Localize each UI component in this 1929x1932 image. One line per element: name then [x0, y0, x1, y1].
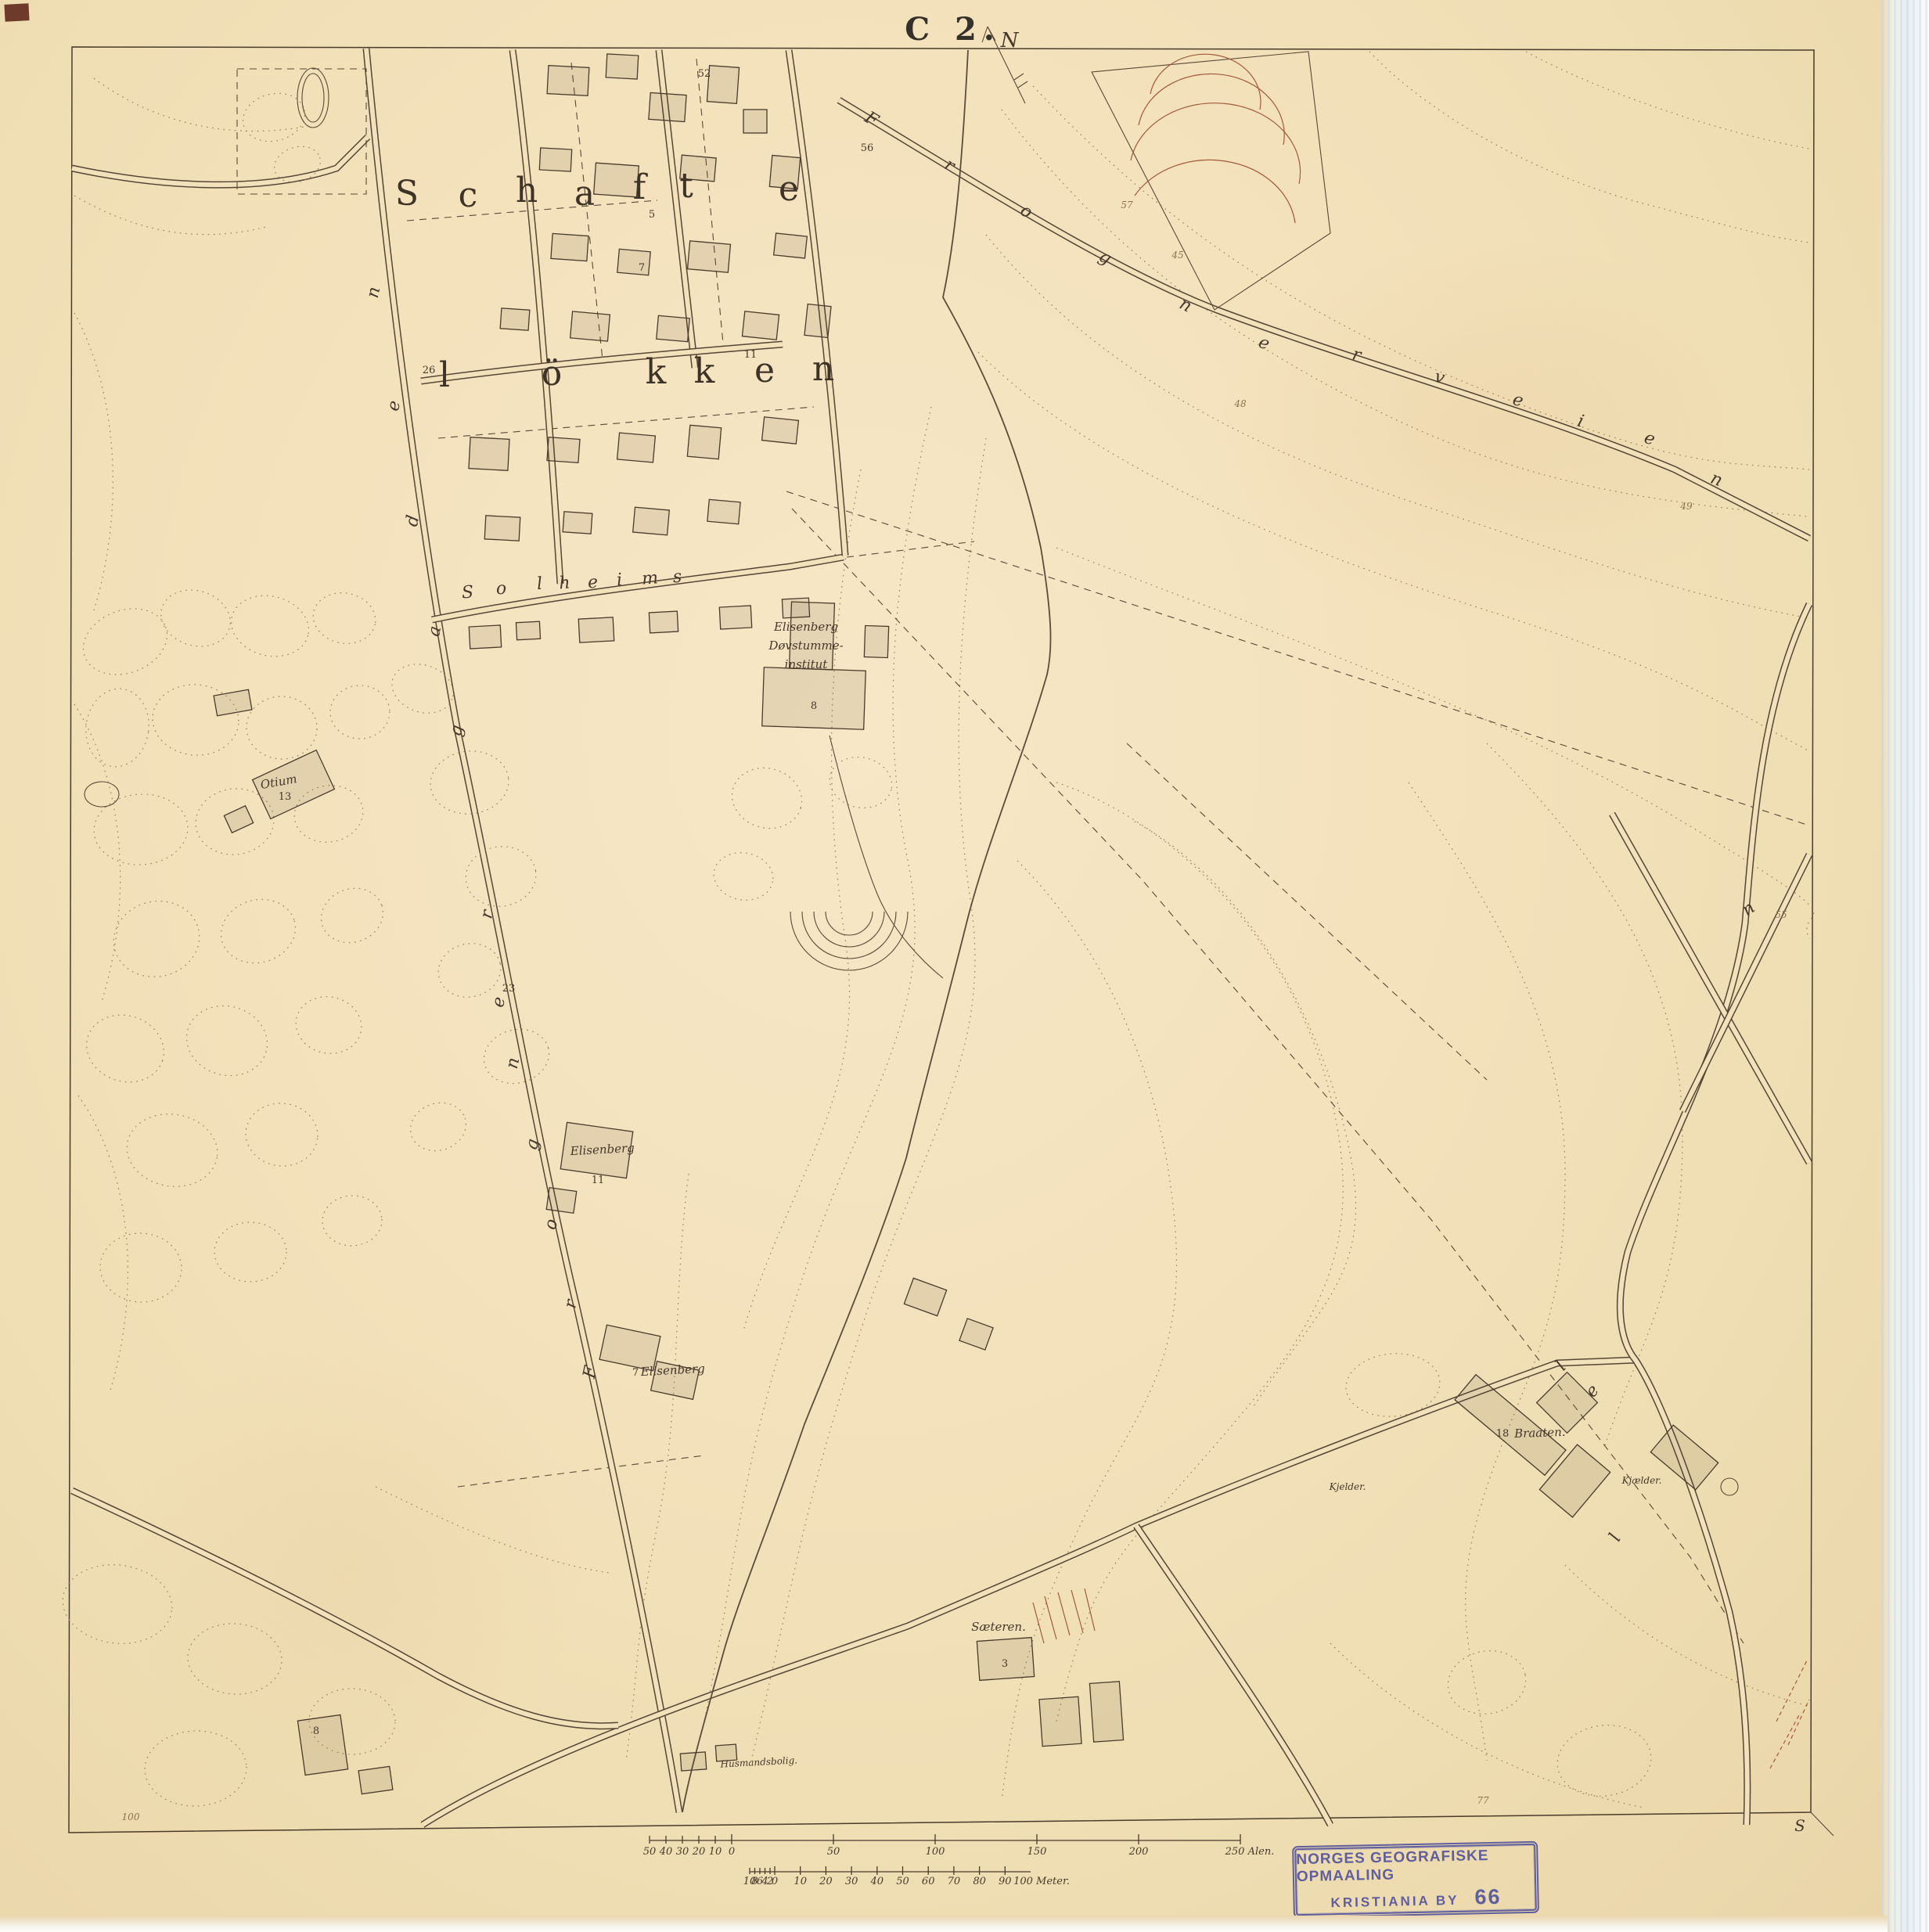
- map-label: 52: [698, 68, 711, 80]
- vegetation-blob: [710, 848, 776, 905]
- map-label: a: [574, 174, 595, 214]
- building: [214, 689, 252, 715]
- building: [774, 233, 808, 258]
- building: [516, 621, 540, 640]
- building: [546, 1188, 577, 1214]
- stream: [682, 50, 1051, 1812]
- building: [687, 425, 721, 459]
- vegetation-blob: [321, 1194, 383, 1247]
- stamp-number: 66: [1474, 1884, 1502, 1909]
- building: [719, 606, 751, 629]
- map-label: Døvstumme-: [768, 639, 843, 653]
- map-label: S: [461, 583, 474, 603]
- scale-label: 90: [999, 1876, 1012, 1887]
- building: [657, 315, 689, 341]
- garden-features: [85, 68, 1738, 1495]
- scale-label: 200: [1128, 1846, 1149, 1858]
- scale-label: 30: [845, 1876, 858, 1887]
- building: [547, 437, 580, 463]
- map-label: Elisenberg: [773, 620, 838, 634]
- scale-label: 100: [926, 1846, 945, 1858]
- building: [484, 516, 520, 541]
- scan-page-edge-bottom: [0, 1916, 1888, 1932]
- scale-label: 20: [819, 1876, 833, 1887]
- map-label: F: [580, 1364, 602, 1381]
- map-label: g: [446, 723, 467, 738]
- vegetation-blob: [214, 1222, 286, 1282]
- vegetation-blob: [81, 685, 153, 771]
- park-vegetation: [58, 87, 1655, 1808]
- building: [743, 110, 767, 133]
- map-label: h: [516, 171, 538, 210]
- map-label: o: [495, 579, 507, 599]
- vegetation-blob: [1553, 1719, 1655, 1802]
- map-label: e: [779, 169, 799, 209]
- map-label: 77: [1477, 1795, 1489, 1806]
- vegetation-blob: [725, 760, 808, 836]
- map-label: Kjælder.: [1621, 1475, 1662, 1486]
- building: [617, 433, 656, 462]
- building: [563, 512, 592, 534]
- building: [578, 617, 614, 642]
- map-frame: [69, 47, 1834, 1836]
- map-label: e: [754, 351, 775, 390]
- vegetation-blob: [99, 1231, 183, 1304]
- vegetation-blob: [246, 695, 319, 760]
- map-label: 7: [639, 262, 645, 274]
- map-label: h: [559, 574, 571, 594]
- vegetation-blob: [149, 681, 241, 758]
- building: [959, 1319, 993, 1350]
- scale-label: 40: [870, 1876, 884, 1887]
- building: [633, 507, 670, 535]
- vegetation-blob: [143, 1729, 247, 1808]
- road-network: [72, 49, 1809, 1825]
- map-label: e: [1642, 428, 1657, 450]
- scan-page-edge-right: [1881, 0, 1929, 1932]
- map-label: 26: [423, 365, 436, 376]
- map-label: n: [812, 349, 834, 389]
- vegetation-blob: [404, 1096, 472, 1157]
- vegetation-blob: [329, 685, 390, 739]
- stamp-line2: KRISTIANIA BY: [1330, 1892, 1459, 1910]
- building: [297, 1715, 347, 1775]
- corner-letter: S: [1794, 1816, 1805, 1835]
- scale-label: 80: [973, 1876, 986, 1887]
- building: [358, 1766, 393, 1793]
- building: [469, 625, 501, 649]
- map-label: 100: [122, 1811, 140, 1822]
- map-label: S: [395, 174, 419, 214]
- map-label: e: [587, 573, 599, 593]
- vegetation-blob: [290, 991, 366, 1060]
- scale-bar-alen: 5040302010050100150200250 Alen.: [643, 1834, 1275, 1858]
- map-label: 23: [502, 983, 516, 995]
- map-canvas: N: [0, 0, 1929, 1932]
- scale-label: 10: [794, 1876, 807, 1887]
- vegetation-blob: [243, 1099, 321, 1169]
- building: [539, 148, 571, 171]
- scale-label: 70: [948, 1876, 961, 1887]
- scale-label: 150: [1027, 1846, 1047, 1858]
- map-label: f: [633, 167, 648, 207]
- map-label: l: [536, 574, 543, 594]
- vegetation-blob: [462, 841, 541, 911]
- building: [1089, 1682, 1123, 1742]
- property-lines: [407, 59, 1809, 1643]
- building: [762, 417, 799, 444]
- map-label: n: [1708, 469, 1726, 491]
- map-label: 57: [1121, 200, 1133, 210]
- map-label: s: [672, 567, 682, 588]
- map-labels: SchaftelökkenFrognergadenSolheimsFrogner…: [122, 68, 1787, 1822]
- map-label: 11: [592, 1175, 605, 1186]
- scale-label: 50: [643, 1846, 657, 1858]
- scale-label: 50: [896, 1876, 909, 1887]
- vegetation-blob: [434, 937, 506, 1002]
- map-label: Sæteren.: [971, 1620, 1026, 1634]
- scale-label: 30: [676, 1846, 689, 1858]
- map-label: m: [641, 568, 659, 588]
- map-label: e: [1510, 390, 1525, 412]
- building: [1039, 1696, 1081, 1746]
- vegetation-blob: [178, 997, 275, 1085]
- scale-label: 0: [772, 1876, 778, 1887]
- map-label: 45: [1171, 250, 1183, 261]
- vegetation-blob: [214, 890, 303, 971]
- map-label: i: [1575, 412, 1586, 432]
- map-label: 11: [744, 349, 758, 361]
- map-label: institut: [785, 657, 829, 671]
- north-arrow: N: [982, 27, 1027, 103]
- vegetation-blob: [238, 87, 310, 148]
- building: [864, 625, 888, 657]
- scale-bar-meter: 1086420102030405060708090100 Meter.: [743, 1866, 1070, 1887]
- scale-label: 10: [709, 1846, 722, 1858]
- vegetation-blob: [309, 588, 380, 649]
- vegetation-blob: [185, 1621, 284, 1697]
- building: [707, 499, 740, 523]
- map-label: 13: [279, 791, 292, 803]
- map-label: k: [694, 351, 715, 391]
- map-label: Kjelder.: [1329, 1481, 1366, 1492]
- building: [804, 304, 831, 338]
- map-label: e: [383, 399, 405, 413]
- scale-label: 0: [729, 1846, 735, 1858]
- scale-label: 40: [659, 1846, 673, 1858]
- map-label: e: [488, 995, 509, 1009]
- vegetation-blob: [74, 598, 177, 686]
- map-label: 8: [811, 700, 817, 712]
- stamp-line1: NORGES GEOGRAFISKE OPMAALING: [1296, 1846, 1535, 1885]
- map-label: 18: [1496, 1428, 1510, 1440]
- vegetation-blob: [314, 880, 390, 951]
- vegetation-blob: [92, 791, 190, 868]
- map-label: i: [616, 570, 623, 590]
- building: [617, 249, 650, 275]
- map-label: 8: [313, 1725, 319, 1737]
- map-label: 5: [649, 209, 655, 221]
- map-label: l: [1606, 1531, 1625, 1545]
- map-label: e: [1256, 333, 1272, 354]
- map-label: 7: [632, 1367, 639, 1379]
- scale-label: 60: [922, 1876, 935, 1887]
- building: [570, 311, 610, 341]
- building: [500, 308, 530, 330]
- building: [707, 66, 739, 104]
- map-label: t: [679, 166, 693, 206]
- building: [594, 163, 639, 197]
- scale-label: 50: [827, 1846, 840, 1858]
- vegetation-blob: [225, 588, 315, 664]
- map-label: 48: [1233, 398, 1247, 409]
- hachures: [1033, 52, 1809, 1768]
- building: [742, 311, 779, 340]
- map-label: ö: [542, 354, 563, 394]
- map-label: 3: [1002, 1658, 1008, 1670]
- building: [224, 806, 253, 833]
- map-label: l: [439, 355, 450, 395]
- vegetation-blob: [58, 1559, 176, 1650]
- contour-lines: [74, 52, 1814, 1808]
- building: [904, 1278, 946, 1315]
- building: [649, 611, 678, 633]
- vegetation-blob: [154, 581, 238, 654]
- building: [547, 66, 589, 96]
- north-label: N: [1000, 29, 1020, 52]
- building: [469, 437, 509, 471]
- scale-label: 250 Alen.: [1225, 1846, 1275, 1858]
- building: [606, 54, 639, 79]
- map-label: 55: [1775, 909, 1787, 920]
- vegetation-blob: [1442, 1644, 1531, 1721]
- map-label: 56: [861, 142, 874, 154]
- scale-label: 20: [692, 1846, 706, 1858]
- vegetation-blob: [122, 1107, 223, 1193]
- map-label: n: [1738, 898, 1758, 920]
- map-label: 49: [1679, 501, 1693, 512]
- map-label: c: [459, 175, 478, 215]
- vegetation-blob: [106, 893, 207, 985]
- building: [680, 1752, 706, 1771]
- map-label: n: [363, 285, 384, 300]
- scale-label: 100 Meter.: [1013, 1876, 1070, 1887]
- building: [551, 233, 588, 261]
- survey-stamp: NORGES GEOGRAFISKE OPMAALING KRISTIANIA …: [1292, 1841, 1539, 1919]
- building: [762, 667, 866, 729]
- building: [649, 92, 686, 121]
- map-label: k: [646, 352, 667, 392]
- building: [688, 241, 731, 272]
- vegetation-blob: [77, 1006, 172, 1092]
- map-label: Braaten.: [1513, 1425, 1566, 1441]
